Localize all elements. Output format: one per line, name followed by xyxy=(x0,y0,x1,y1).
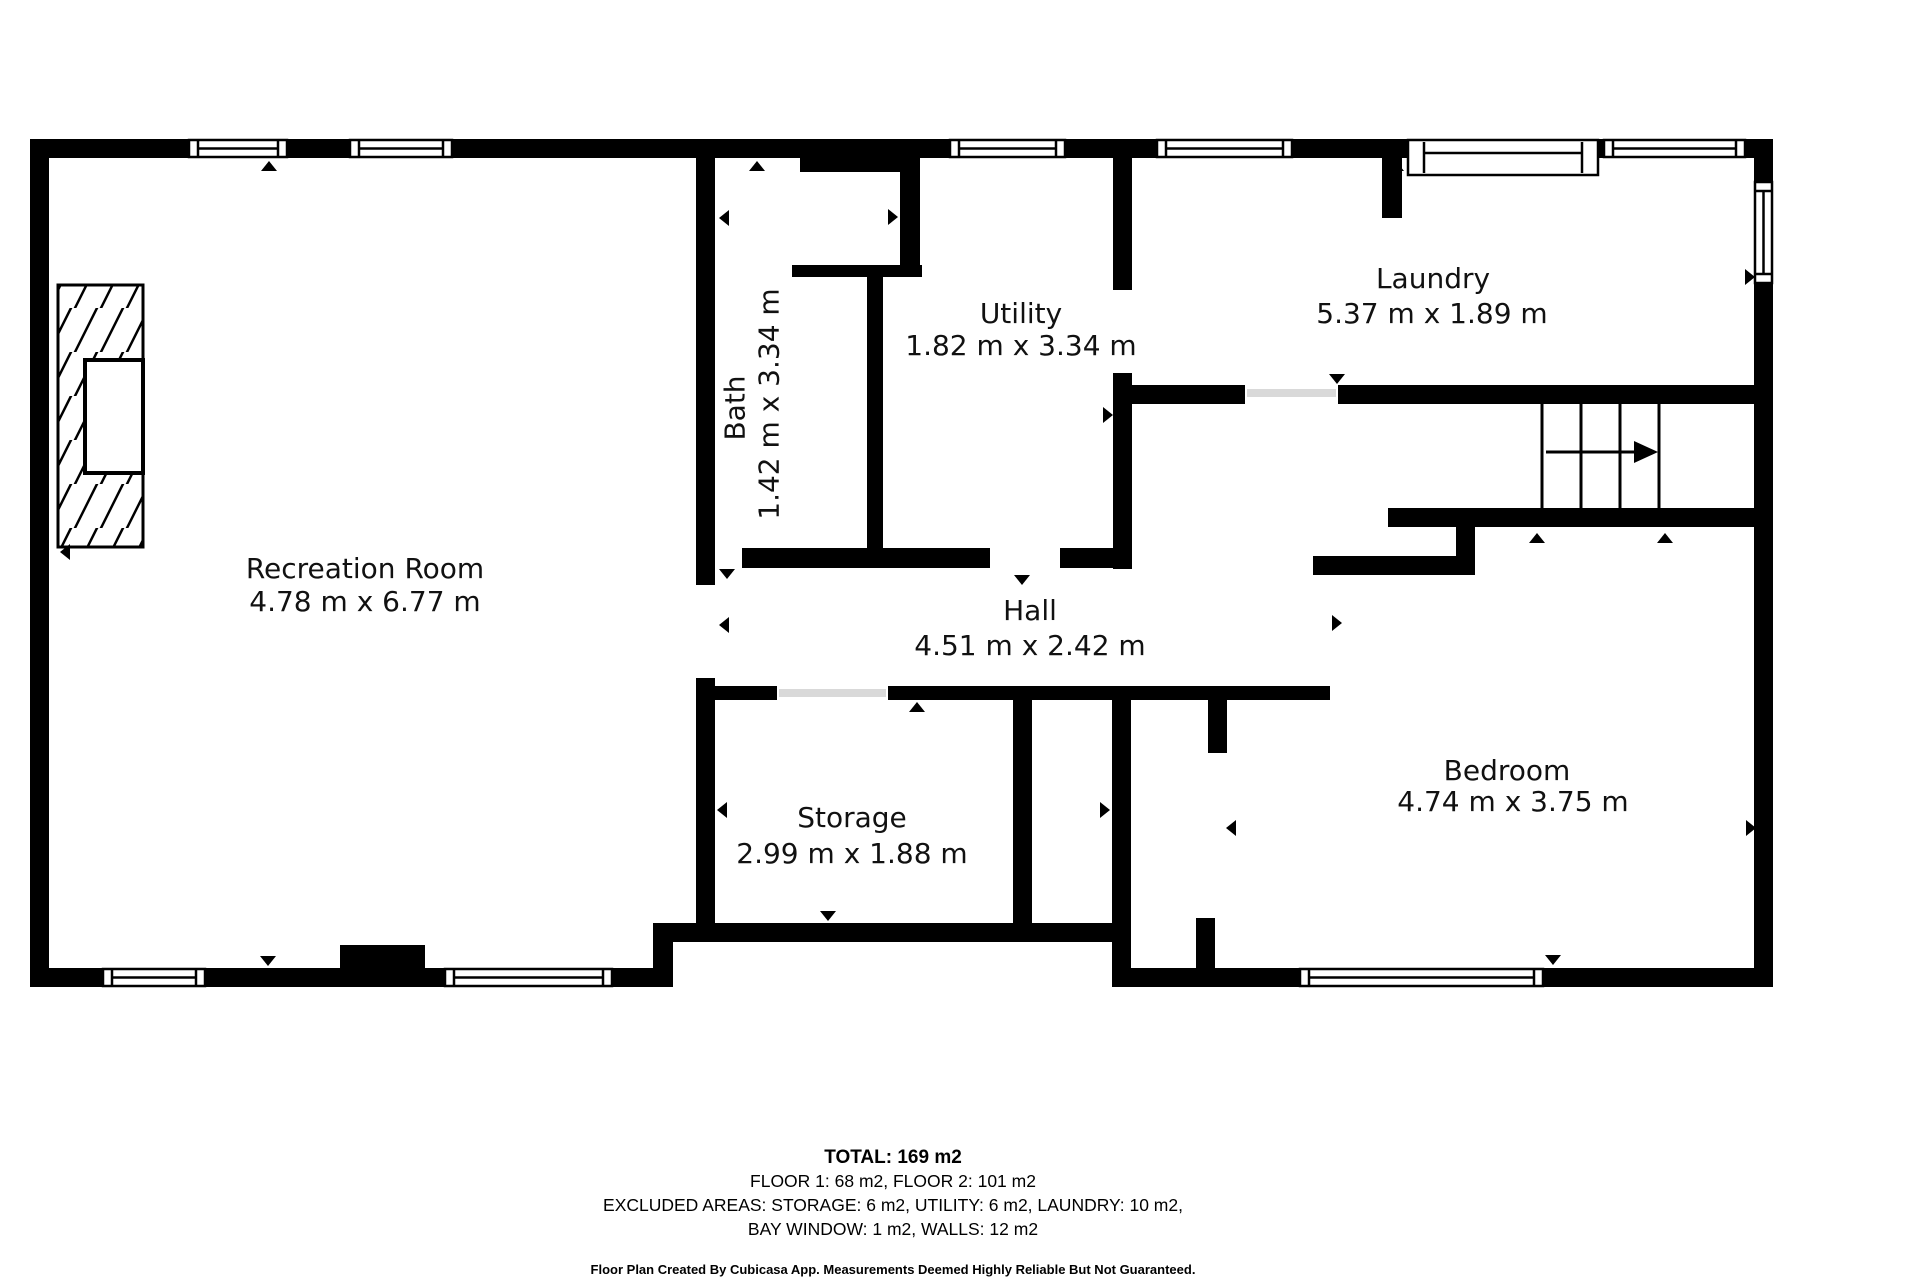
floor-plan-page: Recreation Room 4.78 m x 6.77 m Bath 1.4… xyxy=(0,0,1920,1280)
marker-down-icon xyxy=(260,956,276,966)
floor-plan: Recreation Room 4.78 m x 6.77 m Bath 1.4… xyxy=(0,0,1920,1280)
marker-up-icon xyxy=(1529,533,1545,543)
wall-hall-bottom-b xyxy=(888,686,1330,700)
marker-left-icon xyxy=(717,802,727,818)
room-name: Storage xyxy=(797,801,907,834)
window xyxy=(350,140,452,157)
footer-total: TOTAL: 169 m2 xyxy=(824,1147,962,1168)
room-label-hall: Hall 4.51 m x 2.42 m xyxy=(914,594,1145,662)
bay-window xyxy=(1408,140,1598,175)
wall-storage-right xyxy=(1013,700,1032,923)
window xyxy=(103,969,205,986)
marker-up-icon xyxy=(909,702,925,712)
room-dims: 5.37 m x 1.89 m xyxy=(1316,297,1547,330)
marker-right-icon xyxy=(1332,615,1342,631)
window xyxy=(445,969,612,986)
footer-floors: FLOOR 1: 68 m2, FLOOR 2: 101 m2 xyxy=(750,1171,1036,1191)
room-name: Bedroom xyxy=(1444,754,1571,787)
window xyxy=(1300,969,1543,986)
footer-excluded-1: EXCLUDED AREAS: STORAGE: 6 m2, UTILITY: … xyxy=(603,1195,1183,1215)
wall-bedroom-top xyxy=(1313,556,1475,575)
marker-down-icon xyxy=(1329,374,1345,384)
window xyxy=(1604,140,1745,157)
room-name: Hall xyxy=(1003,594,1057,627)
stairs-direction-arrow xyxy=(1634,441,1658,463)
marker-down-icon xyxy=(1014,575,1030,585)
window xyxy=(1157,140,1292,157)
marker-up-icon xyxy=(261,161,277,171)
window xyxy=(1755,182,1772,283)
marker-down-icon xyxy=(1545,955,1561,965)
staircase xyxy=(1542,404,1659,508)
marker-right-icon xyxy=(1103,407,1113,423)
wall-utility-bottom-a xyxy=(883,548,990,568)
wall-utility-right-upper xyxy=(1113,158,1132,290)
wall-left xyxy=(30,139,49,987)
wall-bath-utility-divider xyxy=(867,277,883,568)
wall-rec-divider-upper xyxy=(696,158,715,585)
room-label-storage: Storage 2.99 m x 1.88 m xyxy=(736,801,967,870)
chimney-block xyxy=(340,945,425,987)
marker-left-icon xyxy=(719,210,729,226)
room-dims: 4.74 m x 3.75 m xyxy=(1397,785,1628,818)
wall-corridor-left xyxy=(1112,700,1131,987)
footer: TOTAL: 169 m2 FLOOR 1: 68 m2, FLOOR 2: 1… xyxy=(591,1147,1196,1277)
room-dims: 4.78 m x 6.77 m xyxy=(249,585,480,618)
room-label-laundry: Laundry 5.37 m x 1.89 m xyxy=(1316,262,1547,330)
footer-excluded-2: BAY WINDOW: 1 m2, WALLS: 12 m2 xyxy=(748,1219,1038,1239)
room-label-bedroom: Bedroom 4.74 m x 3.75 m xyxy=(1397,754,1628,818)
wall-hall-bottom-a xyxy=(696,686,777,700)
marker-right-icon xyxy=(1745,269,1755,285)
footer-disclaimer: Floor Plan Created By Cubicasa App. Meas… xyxy=(591,1262,1196,1277)
room-dims: 2.99 m x 1.88 m xyxy=(736,837,967,870)
marker-down-icon xyxy=(719,569,735,579)
room-dims: 1.42 m x 3.34 m xyxy=(753,288,786,519)
wall-stairs-bottom xyxy=(1388,508,1773,527)
fireplace-insert xyxy=(85,360,143,473)
wall-bottom-mid xyxy=(653,923,1131,942)
room-label-recreation: Recreation Room 4.78 m x 6.77 m xyxy=(246,552,484,618)
wall-bath-bottom-a xyxy=(696,548,712,568)
wall-bath-bottom-b xyxy=(742,548,867,568)
room-name: Recreation Room xyxy=(246,552,484,585)
wall-corridor-right-upper xyxy=(1208,700,1227,753)
room-name: Laundry xyxy=(1376,262,1490,295)
room-dims: 4.51 m x 2.42 m xyxy=(914,629,1145,662)
wall-bath-closet-right xyxy=(900,158,920,277)
door-leaf-laundry xyxy=(1247,389,1336,397)
marker-left-icon xyxy=(1226,820,1236,836)
marker-left-icon xyxy=(719,617,729,633)
marker-up-icon xyxy=(749,161,765,171)
door-leaf-hall xyxy=(779,689,886,697)
wall-laundry-bottom-a xyxy=(1113,385,1245,404)
room-dims: 1.82 m x 3.34 m xyxy=(905,329,1136,362)
room-name: Bath xyxy=(719,375,752,440)
wall-laundry-bottom-b xyxy=(1338,385,1773,404)
fireplace xyxy=(58,285,143,547)
marker-up-icon xyxy=(1657,533,1673,543)
wall-bath-closet-shelf xyxy=(792,265,922,277)
window xyxy=(950,140,1065,157)
room-name: Utility xyxy=(980,297,1062,330)
room-label-utility: Utility 1.82 m x 3.34 m xyxy=(905,297,1136,362)
marker-down-icon xyxy=(820,911,836,921)
wall-corridor-right-lower xyxy=(1196,918,1215,968)
window xyxy=(189,140,287,157)
wall-rec-divider-lower xyxy=(696,678,715,923)
room-label-bath: Bath 1.42 m x 3.34 m xyxy=(719,288,786,519)
marker-right-icon xyxy=(1100,802,1110,818)
marker-right-icon xyxy=(888,209,898,225)
